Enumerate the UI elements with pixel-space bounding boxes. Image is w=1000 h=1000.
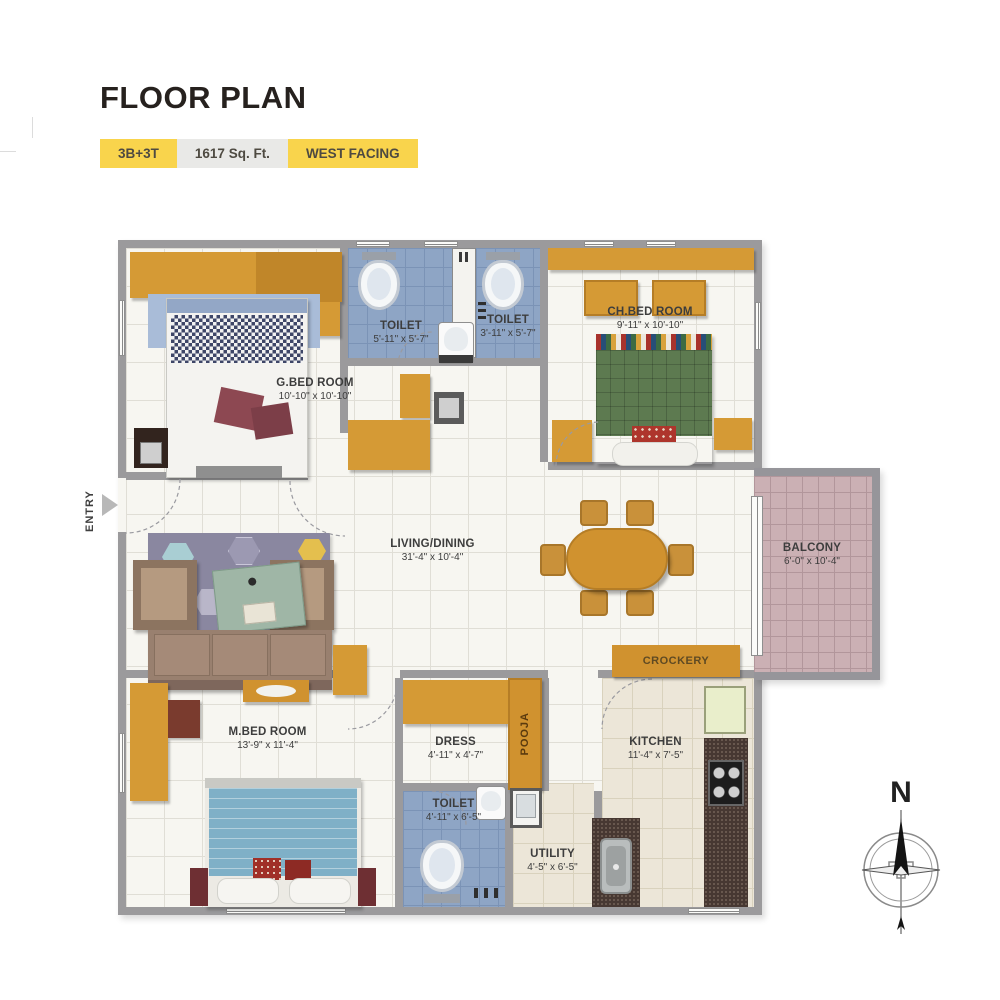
dining-chair xyxy=(626,590,654,616)
dining-table xyxy=(566,528,668,590)
refrigerator xyxy=(704,686,746,734)
sofa-cushion xyxy=(154,634,210,676)
floor-plan-page: FLOOR PLAN 3B+3T 1617 Sq. Ft. WEST FACIN… xyxy=(0,0,1000,1000)
wardrobe xyxy=(403,680,508,724)
wardrobe xyxy=(130,252,256,298)
badge-facing: WEST FACING xyxy=(288,139,418,168)
window xyxy=(119,733,125,793)
pillow xyxy=(217,878,279,904)
console-unit xyxy=(348,420,430,470)
room-label-dress: DRESS 4'-11" x 4'-7" xyxy=(398,736,513,762)
tv-screen xyxy=(439,398,459,418)
room-label-kitchen: KITCHEN 11'-4" x 7'-5" xyxy=(598,736,713,762)
window xyxy=(119,300,125,356)
toilet-icon xyxy=(482,260,524,310)
cistern xyxy=(362,252,396,260)
balcony-sliding-door xyxy=(751,496,763,656)
window xyxy=(755,302,761,350)
table-decor xyxy=(248,577,257,586)
pillow xyxy=(289,878,351,904)
bench xyxy=(196,466,282,478)
child-bed xyxy=(596,334,712,464)
armchair-cushion xyxy=(141,568,187,620)
crop-mark xyxy=(0,151,16,152)
rug-hexagon xyxy=(228,537,260,565)
cushion xyxy=(253,858,281,880)
dining-chair xyxy=(580,590,608,616)
toilet-icon xyxy=(420,840,464,892)
window xyxy=(226,908,346,914)
cistern xyxy=(424,894,460,903)
room-label-toilet-2: TOILET 3'-11" x 5'-7" xyxy=(453,314,563,340)
headboard xyxy=(167,299,307,313)
sink-drain xyxy=(613,864,619,870)
dresser xyxy=(243,680,309,702)
bedside-table xyxy=(552,420,592,462)
pillow xyxy=(612,442,698,466)
table-tray xyxy=(243,601,277,624)
wall xyxy=(400,670,548,678)
bedside-table xyxy=(714,418,752,450)
pooja-unit: POOJA xyxy=(508,678,542,790)
dining-chair xyxy=(626,500,654,526)
toilet-icon xyxy=(358,260,400,310)
window xyxy=(688,908,740,914)
crop-mark xyxy=(32,117,33,138)
wall xyxy=(541,678,549,791)
basin-base xyxy=(439,355,473,363)
room-label-utility: UTILITY 4'-5" x 6'-5" xyxy=(495,848,610,874)
lamp xyxy=(140,442,162,464)
dresser-mirror xyxy=(256,685,296,697)
wardrobe xyxy=(548,248,754,270)
wall xyxy=(395,678,403,907)
sofa-cushion xyxy=(212,634,268,676)
page-title: FLOOR PLAN xyxy=(100,80,307,116)
cabinet xyxy=(400,374,430,418)
blanket xyxy=(596,350,712,436)
shower-icon xyxy=(472,888,500,900)
badge-area: 1617 Sq. Ft. xyxy=(177,139,288,168)
coffee-table xyxy=(212,562,306,635)
headboard xyxy=(596,334,712,350)
footboard xyxy=(205,778,361,788)
bedside-table xyxy=(190,868,208,906)
room-label-chbed: CH.BED ROOM 9'-11" x 10'-10" xyxy=(565,306,735,332)
dining-chair xyxy=(580,500,608,526)
bedside-table xyxy=(358,868,376,906)
window xyxy=(646,241,676,247)
pillow xyxy=(251,402,294,440)
dining-chair xyxy=(668,544,694,576)
crockery-unit: CROCKERY xyxy=(612,645,740,677)
side-table xyxy=(333,645,367,695)
window xyxy=(356,241,390,247)
wall xyxy=(540,248,548,462)
window xyxy=(424,241,458,247)
washer-drum xyxy=(516,794,536,818)
compass-icon: N xyxy=(856,770,946,942)
pooja-label: POOJA xyxy=(519,712,531,756)
blanket xyxy=(171,315,303,363)
room-label-living: LIVING/DINING 31'-4" x 10'-4" xyxy=(360,538,505,564)
sofa-cushion xyxy=(270,634,326,676)
window xyxy=(584,241,614,247)
entry-opening xyxy=(118,478,126,532)
master-bed xyxy=(205,778,361,907)
badge-configuration: 3B+3T xyxy=(100,139,177,168)
room-label-balcony: BALCONY 6'-0" x 10'-4" xyxy=(752,542,872,568)
washing-machine xyxy=(510,788,542,828)
armchair xyxy=(133,560,197,630)
cistern xyxy=(486,252,520,260)
badge-row: 3B+3T 1617 Sq. Ft. WEST FACING xyxy=(100,139,418,168)
crockery-label: CROCKERY xyxy=(643,655,710,667)
stove-icon xyxy=(708,760,744,806)
bedside-table xyxy=(134,428,168,468)
blanket xyxy=(209,788,357,876)
room-label-mbed: M.BED ROOM 13'-9" x 11'-4" xyxy=(195,726,340,752)
entry-arrow-icon xyxy=(102,494,118,516)
entry-label: ENTRY xyxy=(84,478,96,532)
tv-console xyxy=(434,392,464,424)
compass-north-label: N xyxy=(890,776,912,809)
wardrobe xyxy=(130,683,168,801)
shower-icon xyxy=(457,252,471,264)
room-label-toilet-1: TOILET 5'-11" x 5'-7" xyxy=(346,320,456,346)
dining-chair xyxy=(540,544,566,576)
balcony-floor xyxy=(754,468,880,680)
cushion xyxy=(285,860,311,880)
room-label-toilet-3: TOILET 4'-11" x 6'-5" xyxy=(396,798,511,824)
room-label-gbed: G.BED ROOM 10'-10" x 10'-10" xyxy=(250,377,380,403)
